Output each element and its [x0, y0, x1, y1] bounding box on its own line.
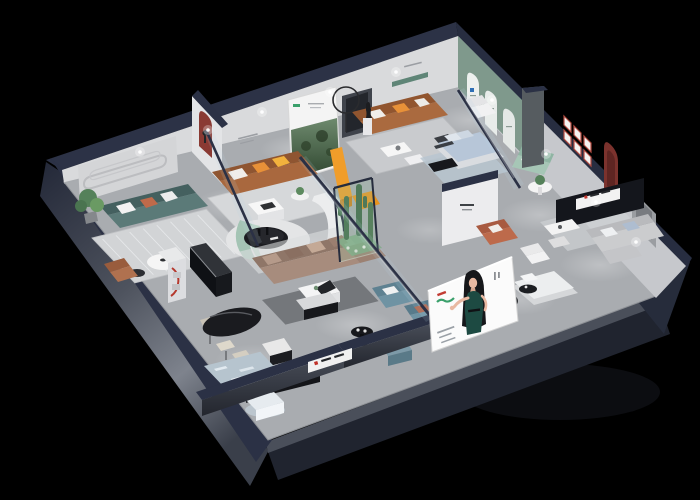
dark-gray-panel	[522, 86, 544, 168]
vase-2	[266, 227, 268, 235]
banner-green-logo-icon	[293, 104, 300, 107]
face	[469, 278, 477, 288]
table-plant	[314, 286, 318, 290]
plant	[535, 175, 545, 185]
brand-mark	[460, 204, 474, 206]
hand	[450, 306, 454, 310]
showroom-render: isometric-furniture-showroom-cutaway-ren…	[0, 0, 700, 500]
cup-2	[363, 329, 366, 332]
table-plant	[296, 187, 304, 195]
cup	[356, 328, 359, 331]
showroom-stage: isometric-furniture-showroom-cutaway-ren…	[0, 0, 700, 500]
blue-m-logo-icon	[470, 88, 474, 92]
black-side-table	[519, 285, 537, 294]
